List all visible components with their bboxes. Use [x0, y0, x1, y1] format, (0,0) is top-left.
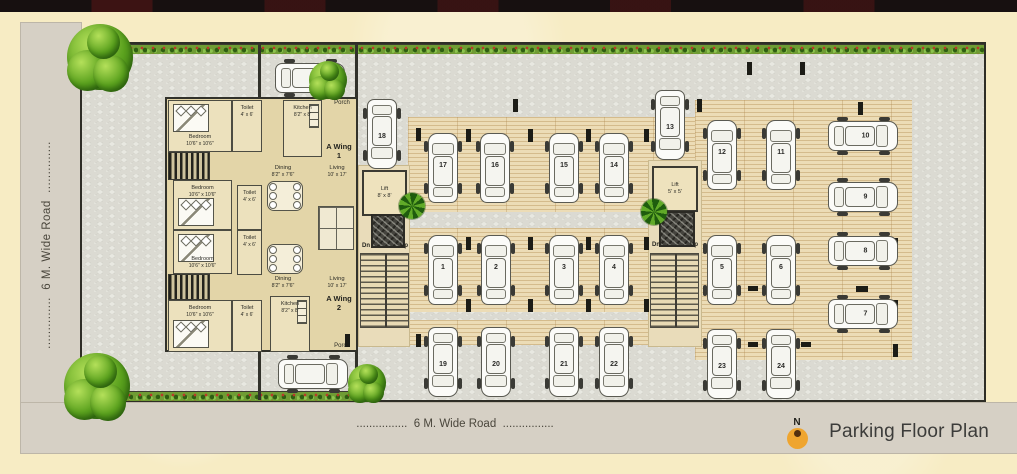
parking-spot-5: 5: [703, 233, 741, 307]
parking-spot-16: 16: [476, 131, 514, 205]
parking-spot-20: 20: [477, 325, 515, 399]
parking-spot-7: 7: [826, 295, 900, 333]
north-indicator: N: [780, 417, 814, 449]
structural-column: [697, 99, 702, 112]
room-toilet: Toilet4' x 6': [237, 230, 262, 275]
parking-spot-15: 15: [545, 131, 583, 205]
left-road-label: .............. 6 M. Wide Road ..........…: [41, 35, 59, 455]
parking-spot-23: 23: [703, 327, 741, 401]
bottom-road-label: ................ 6 M. Wide Road ........…: [330, 418, 580, 430]
parking-spot-3: 3: [545, 233, 583, 307]
staircase: [650, 253, 699, 328]
structural-column: [644, 237, 649, 250]
top-navigation-bar: [0, 0, 1017, 12]
parking-spot-4: 4: [595, 233, 633, 307]
hedge-top: [84, 44, 984, 54]
structural-column: [747, 62, 752, 75]
room-toilet: Toilet4' x 6': [232, 300, 262, 352]
parking-spot-17: 17: [424, 131, 462, 205]
parking-spot-8: 8: [826, 232, 900, 270]
room-toilet: Toilet4' x 6': [232, 100, 262, 152]
page-title: Parking Floor Plan: [829, 421, 989, 443]
wing-label-2: A Wing2: [322, 294, 356, 312]
north-label: N: [780, 417, 814, 428]
room-toilet: Toilet4' x 6': [237, 185, 262, 230]
room-label: Living10' x 17': [315, 161, 359, 181]
living-furniture: [318, 206, 354, 250]
tree-icon: [64, 353, 130, 419]
tree-icon: [309, 61, 347, 99]
structural-column: [466, 237, 471, 250]
structural-column: [345, 334, 350, 347]
parking-spot-21: 21: [545, 325, 583, 399]
structural-column: [748, 342, 758, 347]
dining-table: [267, 181, 303, 211]
structural-column: [466, 129, 471, 142]
structural-column: [858, 102, 863, 115]
room-bedroom: Bedroom10'6" x 10'6": [173, 180, 232, 230]
room-kitchen: Kitchen8'2" x 8': [270, 296, 310, 352]
room-kitchen: Kitchen8'2" x 8': [283, 100, 322, 157]
parking-floor-plan-page: .............. 6 M. Wide Road ..........…: [0, 0, 1017, 474]
room-label: Dining8'2" x 7'6": [261, 161, 305, 181]
dining-table: [267, 244, 303, 274]
parking-spot-6: 6: [762, 233, 800, 307]
tree-icon: [348, 364, 386, 402]
stair-direction-labels: DnUp: [362, 243, 408, 249]
room-bedroom: Bedroom10'6" x 10'6": [173, 230, 232, 274]
palm-tree-icon: [641, 199, 667, 225]
parking-spot-19: 19: [424, 325, 462, 399]
wardrobe-hatch: [168, 274, 210, 300]
structural-column: [644, 129, 649, 142]
parking-spot-13: 13: [651, 88, 689, 162]
parking-spot-11: 11: [762, 118, 800, 192]
structural-column: [800, 62, 805, 75]
structural-column: [856, 286, 868, 292]
compound-wall: [258, 44, 261, 98]
staircase: [360, 253, 409, 328]
parking-spot-14: 14: [595, 131, 633, 205]
structural-column: [416, 128, 421, 141]
parking-spot-10: 10: [826, 117, 900, 155]
porch-car: [276, 355, 350, 393]
structural-column: [513, 99, 518, 112]
north-icon: [787, 428, 808, 449]
structural-column: [528, 299, 533, 312]
structural-column: [586, 237, 591, 250]
structural-column: [586, 129, 591, 142]
compound-wall: [258, 352, 261, 400]
porch-label: Porch: [328, 100, 356, 106]
parking-spot-1: 1: [424, 233, 462, 307]
structural-column: [416, 334, 421, 347]
stair-direction-labels: DnUp: [652, 242, 698, 248]
structural-column: [893, 344, 898, 357]
parking-spot-24: 24: [762, 327, 800, 401]
structural-column: [586, 299, 591, 312]
compound-wall: [355, 44, 358, 98]
structural-column: [748, 286, 758, 291]
room-bedroom: Bedroom10'6" x 10'6": [168, 100, 232, 152]
parking-spot-2: 2: [477, 233, 515, 307]
room-bedroom: Bedroom10'6" x 10'6": [168, 300, 232, 352]
wing-label-1: A Wing1: [322, 142, 356, 160]
wardrobe-hatch: [168, 152, 210, 180]
structural-column: [466, 299, 471, 312]
porch-label: Porch: [328, 343, 356, 349]
parking-spot-18: 18: [363, 97, 401, 171]
structural-column: [528, 237, 533, 250]
room-label: Dining8'2" x 7'6": [261, 272, 305, 292]
room-label: Living10' x 17': [315, 272, 359, 292]
palm-tree-icon: [399, 193, 425, 219]
parking-spot-22: 22: [595, 325, 633, 399]
parking-spot-9: 9: [826, 178, 900, 216]
structural-column: [528, 129, 533, 142]
tree-icon: [67, 24, 133, 90]
parking-spot-12: 12: [703, 118, 741, 192]
structural-column: [801, 342, 811, 347]
structural-column: [644, 299, 649, 312]
